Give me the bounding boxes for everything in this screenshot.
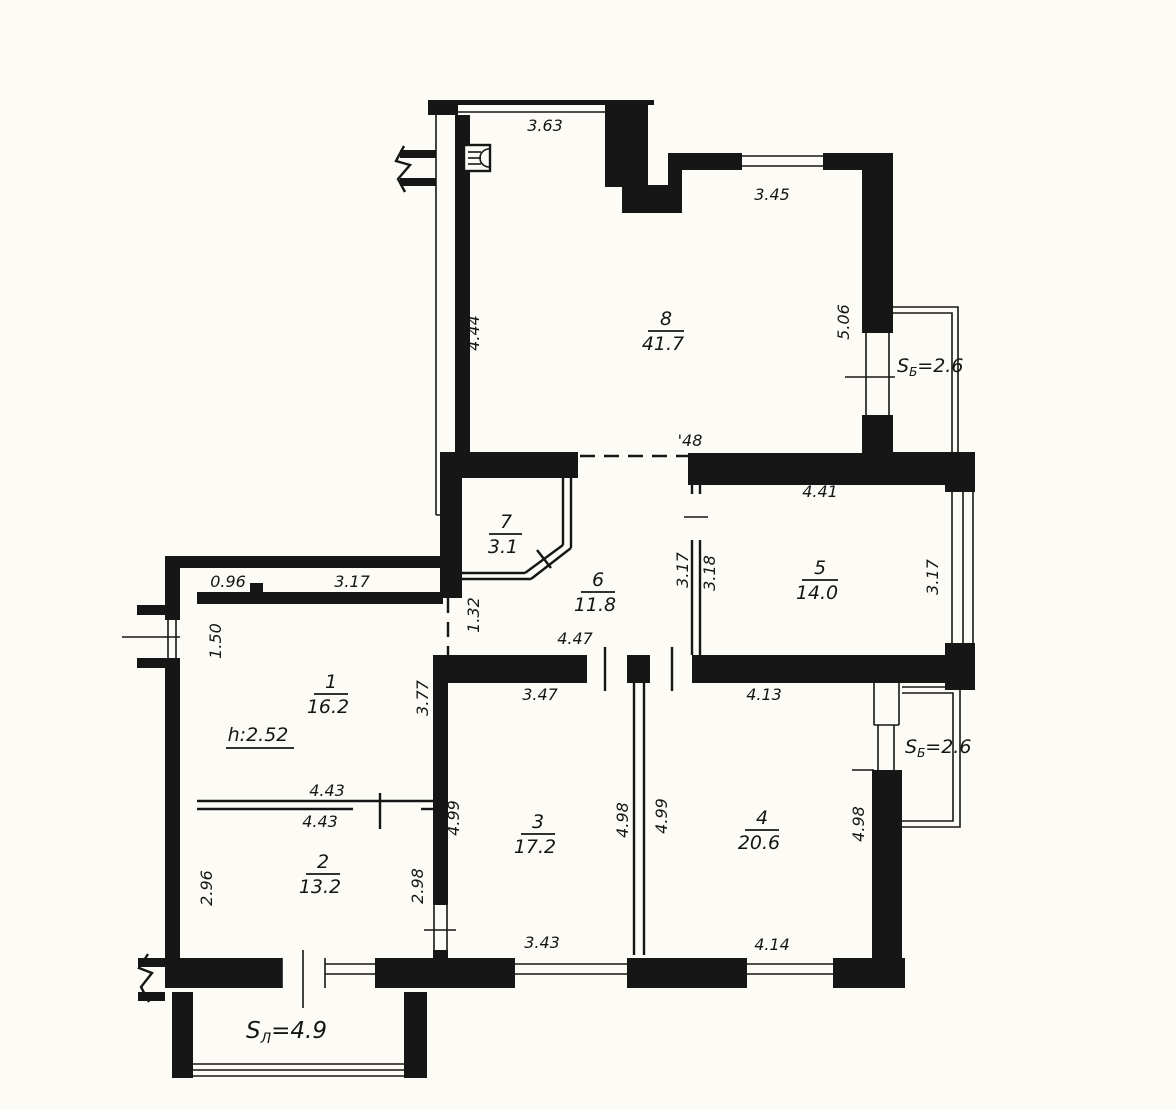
room-7-area: 3.1	[488, 536, 518, 558]
dim-3-17-hall: 3.17	[673, 551, 692, 587]
dimension-labels: 3.63 1.38 3.45 5.06 4.44 '48 4.41 3.17 3…	[197, 116, 942, 954]
dim-4-98-partition: 4.98	[613, 802, 632, 838]
dim-4-14: 4.14	[754, 935, 790, 954]
dim-3-45: 3.45	[754, 185, 790, 204]
room-6-area: 11.8	[574, 594, 616, 616]
stove-icon	[464, 145, 490, 171]
dim-1-32: 1.32	[464, 597, 483, 633]
dim-3-63: 3.63	[527, 116, 563, 135]
dim-1-50: 1.50	[206, 623, 225, 659]
room-5-area: 14.0	[796, 582, 838, 604]
exterior-walls	[137, 100, 975, 1078]
dim-4-41: 4.41	[802, 482, 838, 501]
dim-4-44: 4.44	[464, 315, 483, 351]
dim-4-43-bottom: 4.43	[302, 812, 338, 831]
dim-3-47: 3.47	[522, 685, 558, 704]
room-3-area: 17.2	[514, 836, 556, 858]
room-4-area: 20.6	[738, 832, 780, 854]
dim-4-99-partition: 4.99	[652, 798, 671, 834]
room-1-area: 16.2	[307, 696, 349, 718]
room-5-number: 5	[814, 557, 826, 579]
dashed-openings	[448, 456, 688, 655]
dim-4-99-room3: 4.99	[444, 800, 463, 836]
room-1-number: 1	[325, 671, 337, 693]
dim-4-43-top: 4.43	[309, 781, 345, 800]
dim-3-18: 3.18	[700, 555, 719, 591]
balcony-top-right-label: SБ=2.6	[897, 355, 963, 379]
dim-4-98-room4: 4.98	[849, 806, 868, 842]
room-6-number: 6	[592, 569, 604, 591]
floor-plan-sheet: { "drawing": { "type": "apartment-floor-…	[0, 0, 1176, 1110]
dim-2-96: 2.96	[197, 870, 216, 906]
dim-3-17-room5: 3.17	[923, 558, 942, 594]
dim-5-06: 5.06	[834, 304, 853, 340]
room-3-number: 3	[532, 811, 544, 833]
balcony-bottom-label: SЛ=4.9	[246, 1018, 327, 1047]
dim-4-13: 4.13	[746, 685, 782, 704]
room-2-number: 2	[317, 851, 329, 873]
dim-3-77: 3.77	[413, 679, 432, 715]
dim-3-43: 3.43	[524, 933, 560, 952]
room-8-area: 41.7	[642, 333, 684, 355]
room-7-number: 7	[500, 511, 512, 533]
dim-2-98: 2.98	[408, 868, 427, 904]
dim-3-17-room1: 3.17	[334, 572, 370, 591]
dim-4-47: 4.47	[557, 629, 593, 648]
dim-0-96: 0.96	[210, 572, 246, 591]
room-8-number: 8	[660, 308, 672, 330]
room-2-area: 13.2	[299, 876, 341, 898]
room-4-number: 4	[756, 807, 768, 829]
height-note: h:2.52	[228, 724, 289, 746]
dim-1-48: '48	[678, 431, 703, 450]
floor-plan: 8 41.7 7 3.1 6 11.8 5 14.0 1 16.2 2 13.2…	[0, 0, 1176, 1110]
balcony-right-label: SБ=2.6	[905, 736, 971, 760]
